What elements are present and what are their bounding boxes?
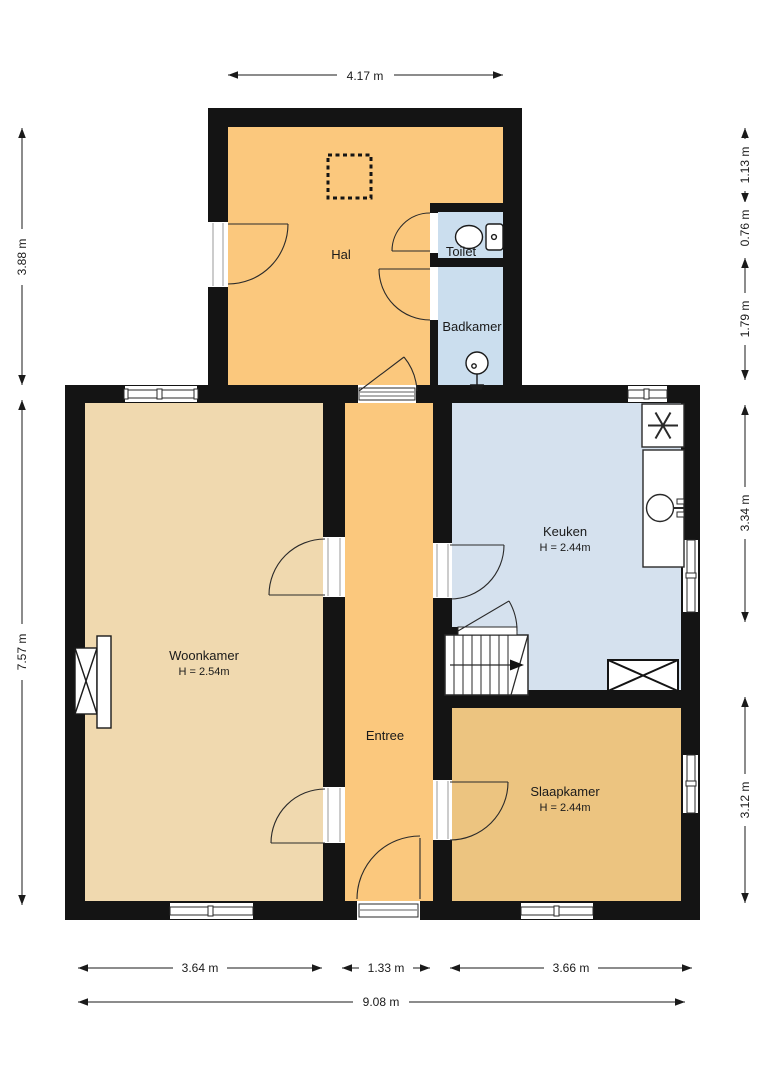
dim-right-5: 3.12 m [738, 782, 752, 819]
dim-left-lower: 7.57 m [15, 634, 29, 671]
dim-right-2: 0.76 m [738, 210, 752, 247]
front-door-slab [357, 901, 420, 920]
slaapkamer-bottom-window [521, 903, 593, 919]
dim-bottom-1: 3.64 m [182, 961, 219, 975]
dim-bottom-3: 3.66 m [553, 961, 590, 975]
slaapkamer-height: H = 2.44m [539, 802, 590, 814]
keuken-right-window [683, 540, 698, 612]
keuken-height: H = 2.44m [539, 542, 590, 554]
dim-left-upper: 3.88 m [15, 239, 29, 276]
floorplan-page: Hal Toilet Badkamer Keuken H = 2.44m Woo… [0, 0, 763, 1080]
slaapkamer-right-window [683, 755, 698, 813]
dim-right-3: 1.79 m [738, 301, 752, 338]
crossed-unit [608, 660, 678, 691]
dim-bottom-total: 9.08 m [363, 995, 400, 1009]
hal-label: Hal [331, 247, 351, 262]
woonkamer-label: Woonkamer [169, 648, 240, 663]
woonkamer-bottom-window [170, 903, 253, 919]
chimney [75, 636, 111, 728]
dim-bottom-2: 1.33 m [368, 961, 405, 975]
kitchen-sink-counter [643, 450, 684, 567]
slaapkamer-label: Slaapkamer [530, 784, 600, 799]
dim-right-1: 1.13 m [738, 147, 752, 184]
keuken-label: Keuken [543, 524, 587, 539]
entree-label: Entree [366, 728, 404, 743]
floorplan-drawing: Hal Toilet Badkamer Keuken H = 2.44m Woo… [0, 0, 763, 1080]
badkamer-label: Badkamer [442, 319, 502, 334]
toilet-label: Toilet [446, 244, 477, 259]
dim-top: 4.17 m [347, 69, 384, 83]
staircase [445, 635, 528, 695]
woonkamer-height: H = 2.54m [178, 666, 229, 678]
dim-right-4: 3.34 m [738, 495, 752, 532]
entree-room [345, 403, 433, 901]
keuken-top-window [628, 386, 667, 402]
extractor-fan [642, 404, 684, 447]
woonkamer-top-window [124, 386, 198, 402]
